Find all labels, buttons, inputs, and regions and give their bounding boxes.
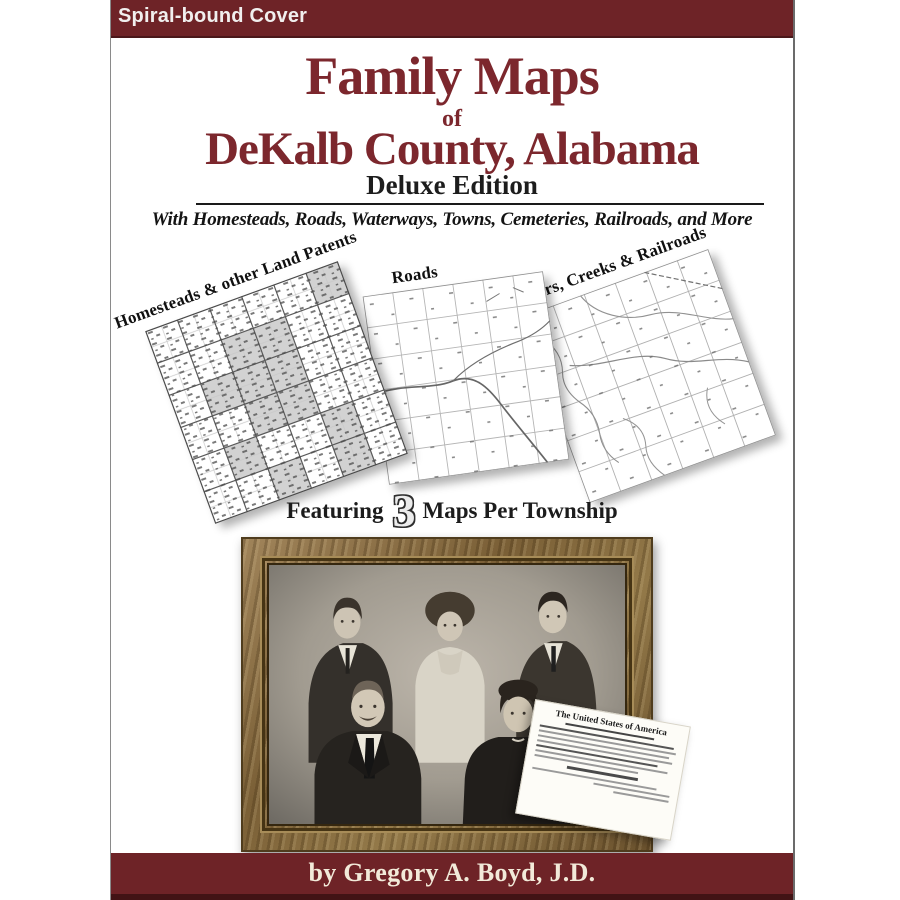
edition-label: Deluxe Edition bbox=[111, 170, 793, 201]
map-thumbnail-rivers: Rivers, Creeks & Railroads bbox=[522, 249, 776, 503]
featuring-suffix: Maps Per Township bbox=[422, 498, 617, 524]
book-cover-page: Spiral-bound Cover Family Maps of DeKalb… bbox=[110, 0, 795, 900]
featuring-number: 3 bbox=[392, 488, 415, 534]
author-byline: by Gregory A. Boyd, J.D. bbox=[111, 858, 793, 888]
featuring-caption: Featuring 3 Maps Per Township bbox=[111, 488, 793, 534]
title-line2: DeKalb County, Alabama bbox=[111, 122, 793, 176]
binding-type-label: Spiral-bound Cover bbox=[118, 5, 307, 28]
patent-heading: The United States of America bbox=[541, 707, 681, 741]
title-divider-rule bbox=[196, 203, 764, 205]
title-line1: Family Maps bbox=[111, 48, 793, 105]
map-label-roads: Roads bbox=[390, 262, 439, 288]
byline-bar: by Gregory A. Boyd, J.D. bbox=[111, 853, 793, 900]
top-banner: Spiral-bound Cover bbox=[111, 0, 793, 38]
featuring-prefix: Featuring bbox=[286, 498, 383, 524]
